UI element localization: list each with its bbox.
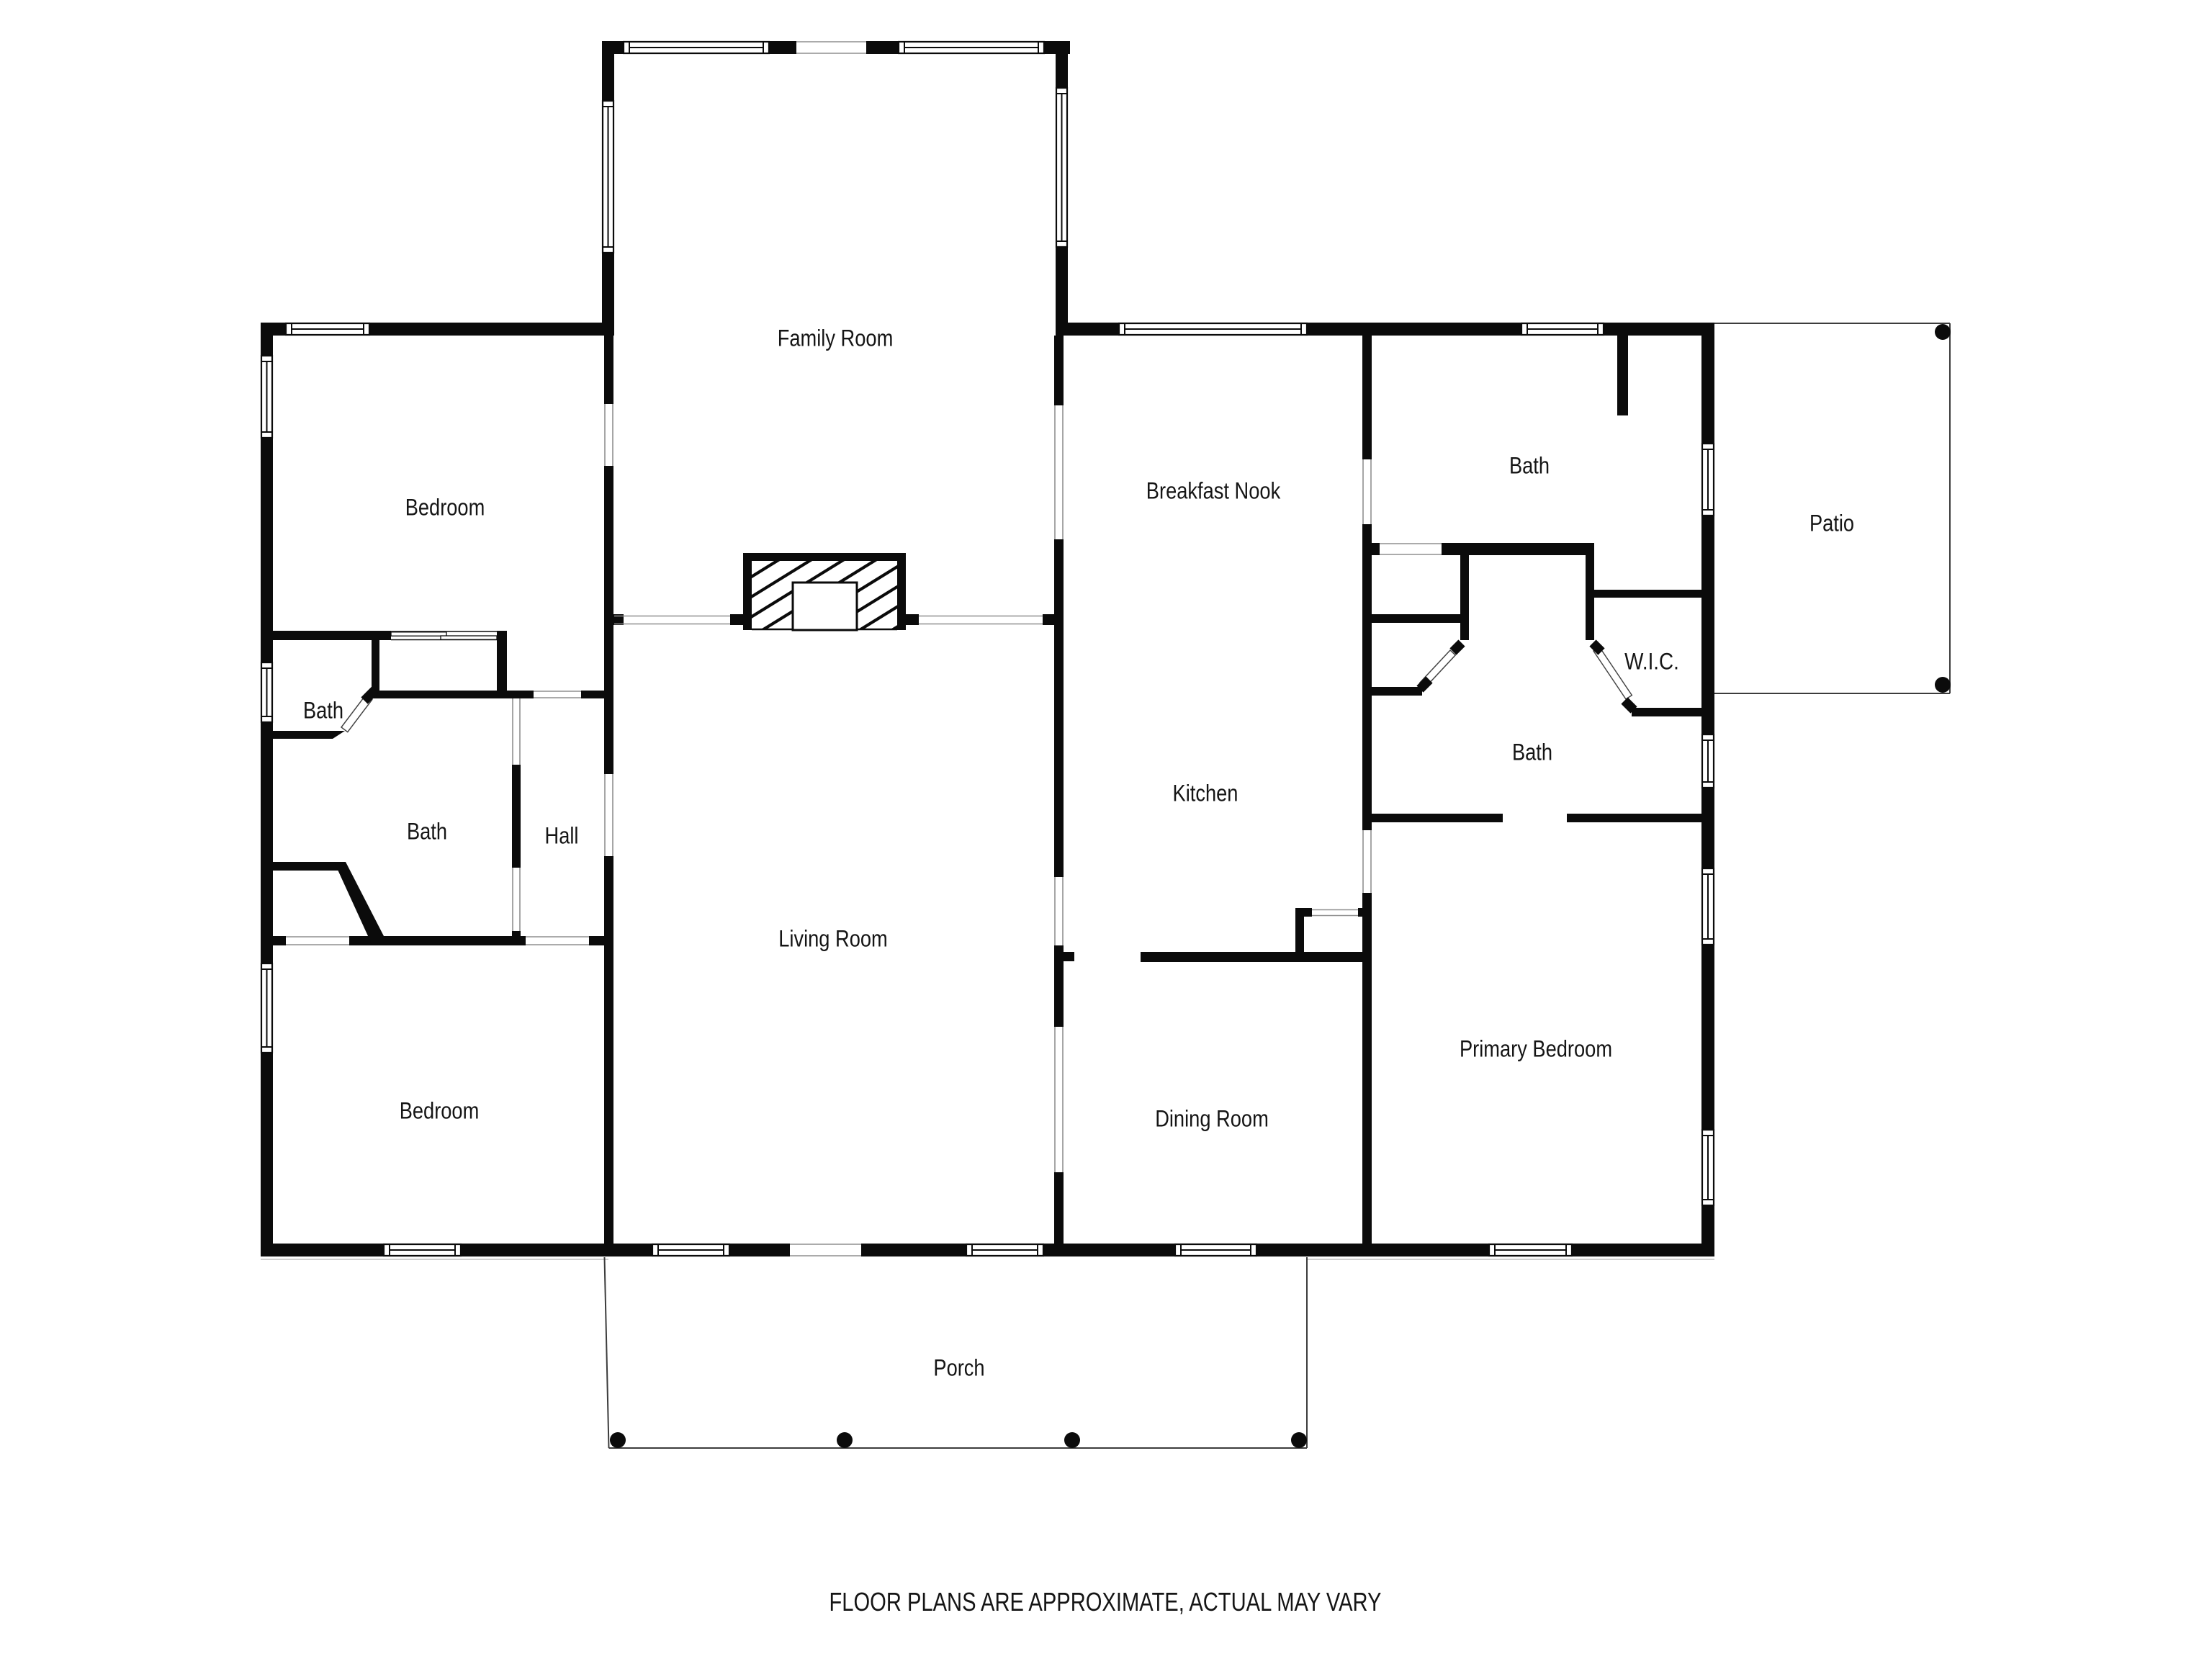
- svg-text:Living Room: Living Room: [778, 926, 888, 952]
- svg-text:Bedroom: Bedroom: [405, 495, 485, 521]
- svg-text:Kitchen: Kitchen: [1173, 781, 1238, 806]
- svg-text:W.I.C.: W.I.C.: [1624, 649, 1679, 675]
- svg-text:Porch: Porch: [933, 1355, 984, 1381]
- svg-text:Family Room: Family Room: [778, 325, 894, 351]
- svg-text:Primary Bedroom: Primary Bedroom: [1460, 1036, 1612, 1062]
- svg-text:Bath: Bath: [303, 698, 343, 724]
- svg-text:FLOOR PLANS ARE APPROXIMATE, A: FLOOR PLANS ARE APPROXIMATE, ACTUAL MAY …: [829, 1587, 1382, 1617]
- svg-text:Bath: Bath: [1509, 453, 1550, 479]
- svg-text:Dining Room: Dining Room: [1155, 1106, 1269, 1132]
- svg-text:Breakfast Nook: Breakfast Nook: [1146, 478, 1281, 504]
- svg-text:Bath: Bath: [1512, 739, 1552, 765]
- svg-text:Patio: Patio: [1809, 511, 1854, 536]
- svg-text:Hall: Hall: [545, 823, 579, 849]
- svg-text:Bedroom: Bedroom: [400, 1098, 480, 1124]
- svg-text:Bath: Bath: [407, 819, 447, 845]
